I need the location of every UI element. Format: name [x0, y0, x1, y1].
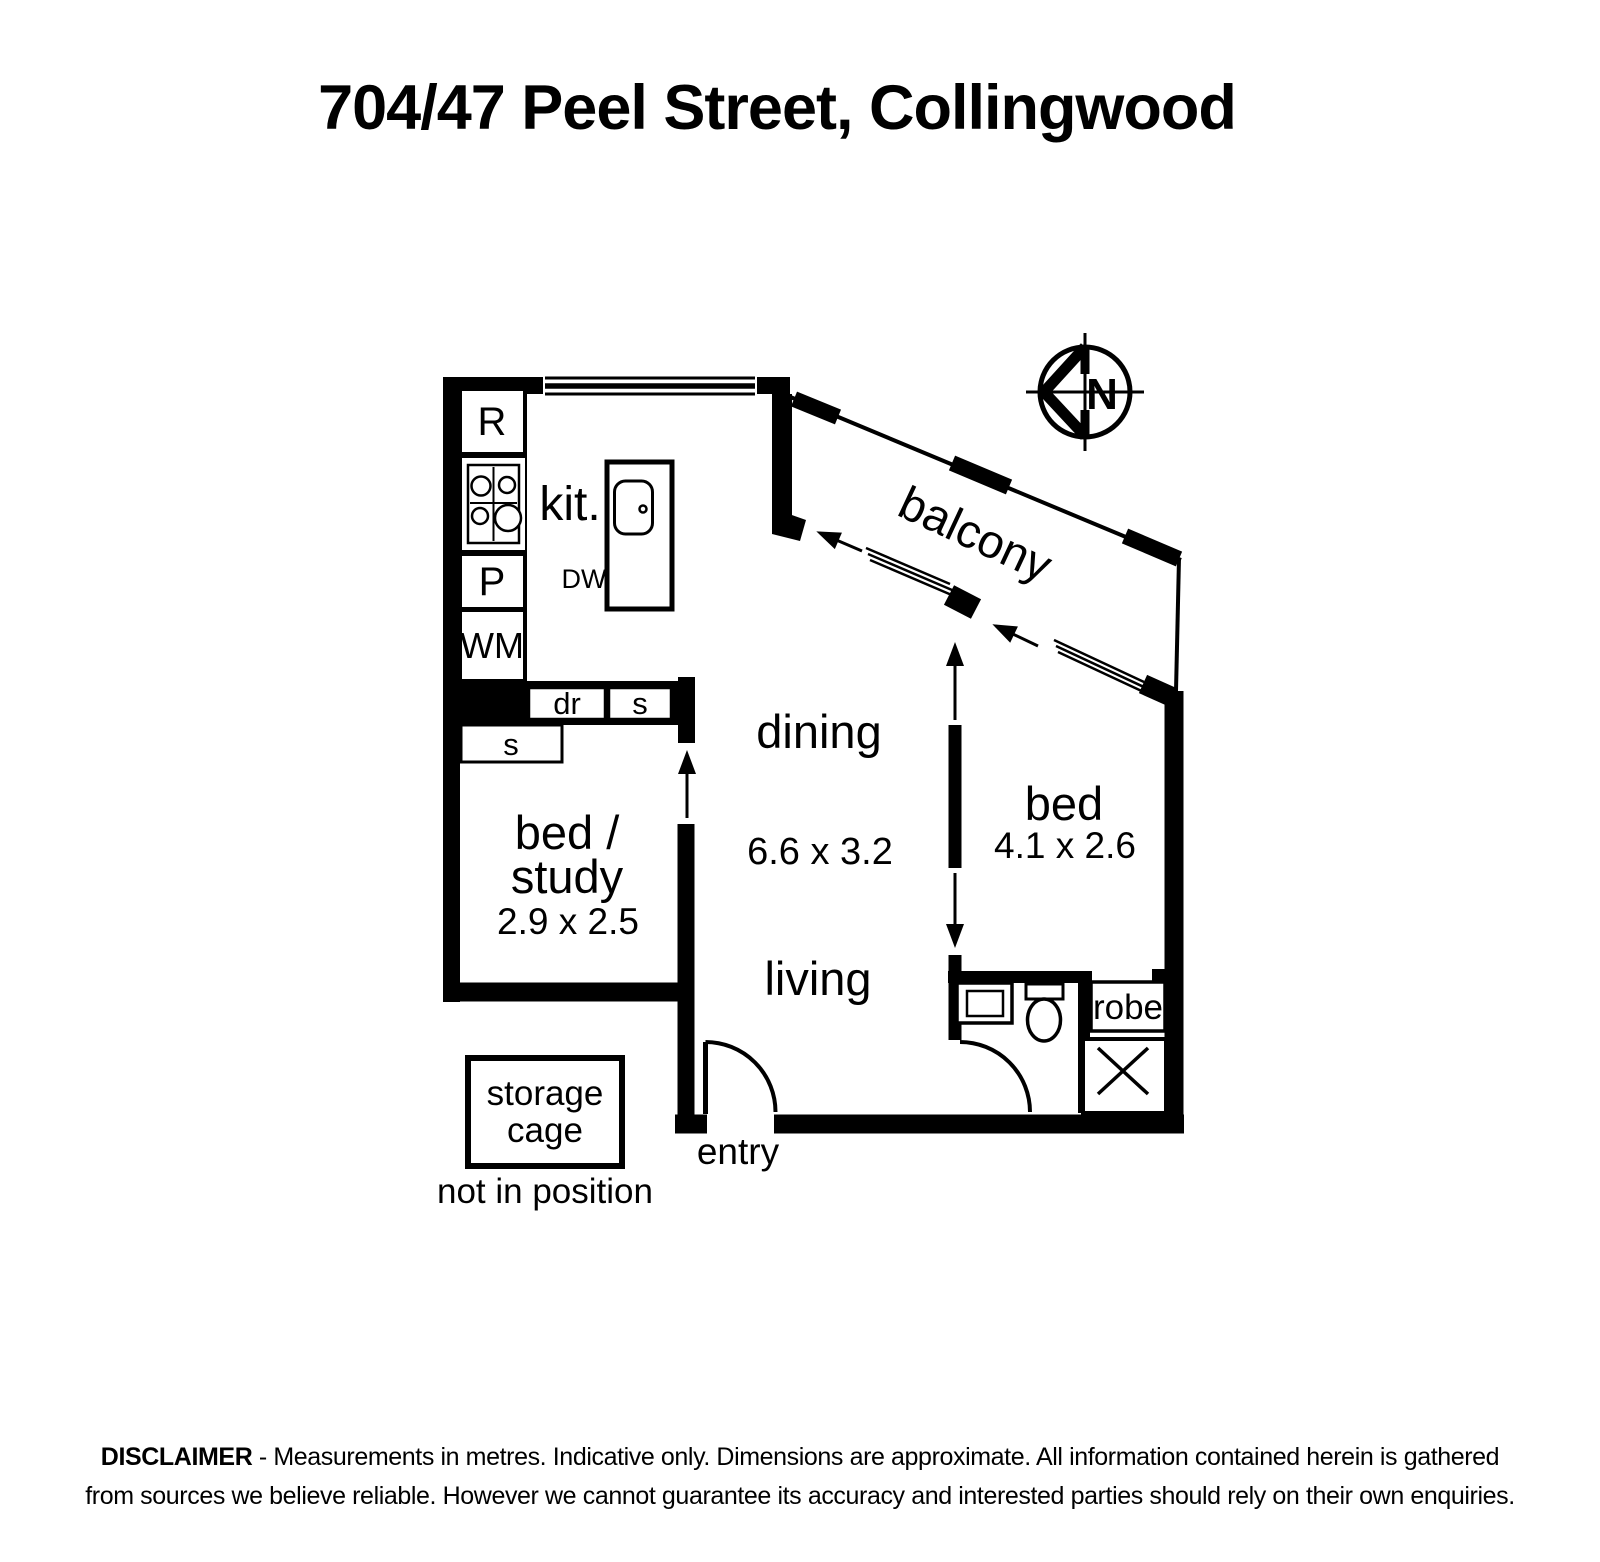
balcony-right-edge	[1176, 558, 1179, 691]
storage-label-line1: storage	[487, 1074, 604, 1113]
sliding-door-track-bed	[1054, 640, 1148, 694]
dining-dims: 6.6 x 3.2	[747, 831, 893, 873]
kitchen-label: kit.	[539, 478, 600, 531]
kitchen-window-icon	[543, 375, 757, 396]
balcony-mid-pier	[949, 595, 976, 609]
floorplan-page: 704/47 Peel Street, Collingwood	[0, 0, 1600, 1562]
storage-label-line2: cage	[507, 1111, 583, 1150]
fridge-label: R	[478, 400, 507, 444]
bedstudy-dims: 2.9 x 2.5	[497, 901, 639, 942]
sliding-door-arrow	[820, 533, 862, 551]
sink-icon	[615, 481, 653, 534]
washer-label: WM	[460, 625, 524, 666]
shelf-label-left: s	[503, 727, 519, 762]
bed-label: bed	[1025, 777, 1103, 830]
storage-note: not in position	[437, 1172, 653, 1211]
floorplan-drawing: N kit. DW R P WM dr s s dining 6.6 x 3.2…	[0, 0, 1600, 1562]
drawers-label: dr	[553, 686, 581, 721]
disclaimer-heading: DISCLAIMER	[101, 1443, 253, 1471]
entry-label: entry	[697, 1131, 780, 1172]
sliding-door-arrow	[996, 626, 1038, 646]
bed-partition-sliders	[687, 646, 955, 944]
disclaimer-line1: DISCLAIMER - Measurements in metres. Ind…	[0, 1438, 1600, 1477]
compass-icon: N	[1026, 333, 1144, 451]
balcony-pier	[952, 463, 1009, 487]
dishwasher-label: DW	[562, 564, 607, 594]
balcony-pier	[794, 399, 838, 417]
sliding-door-track-living	[866, 548, 954, 596]
shelf-label-top: s	[632, 686, 648, 721]
living-label: living	[764, 952, 871, 1005]
disclaimer: DISCLAIMER - Measurements in metres. Ind…	[0, 1438, 1600, 1516]
pantry-label: P	[479, 560, 506, 604]
vanity-icon	[957, 983, 1012, 1023]
dining-label: dining	[756, 705, 881, 758]
toilet-icon	[1026, 984, 1063, 1041]
compass-north-label: N	[1086, 370, 1118, 419]
wall-stub-bedstudy-door	[678, 677, 695, 743]
robe-label: robe	[1093, 988, 1163, 1027]
door-arc-entry	[706, 1042, 776, 1112]
shower-x-icon	[1083, 1039, 1166, 1113]
disclaimer-line2: from sources we believe reliable. Howeve…	[0, 1477, 1600, 1516]
balcony-end-pier	[1143, 684, 1172, 697]
bedstudy-label-line2: study	[511, 850, 624, 903]
entry-door-icon	[706, 1042, 776, 1114]
balcony-pier	[1125, 536, 1179, 559]
bed-dims: 4.1 x 2.6	[994, 825, 1136, 866]
door-arc-bathroom	[960, 1042, 1030, 1112]
